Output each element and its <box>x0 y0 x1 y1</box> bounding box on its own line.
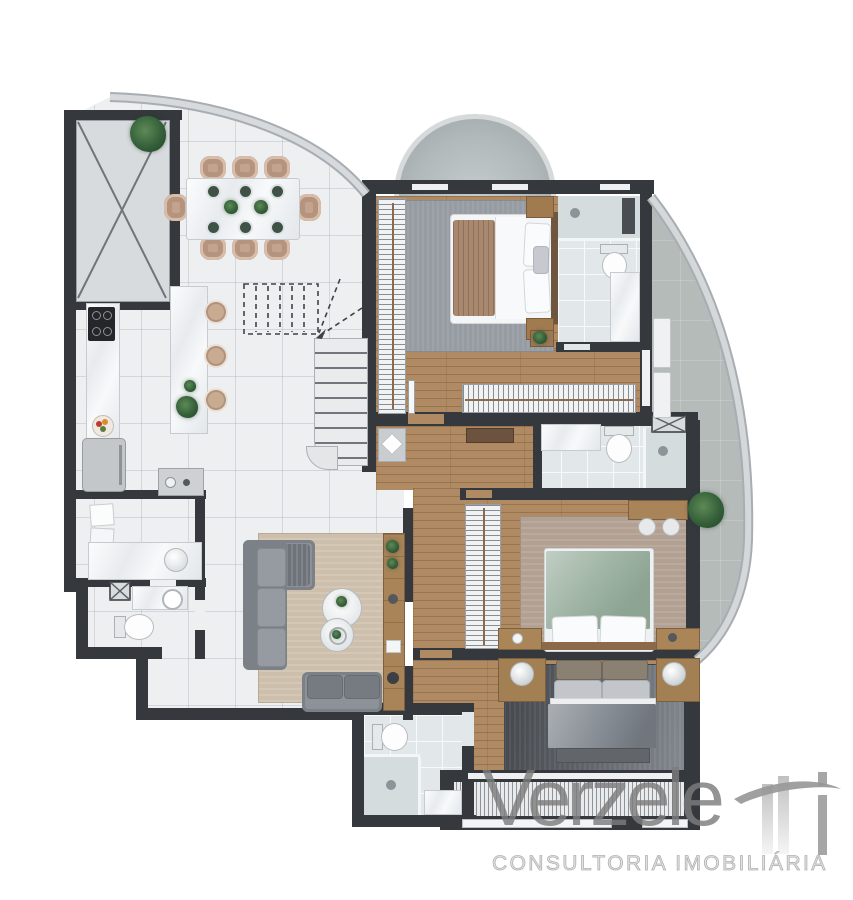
floor-plan: Verzele CONSULTORIA IMOBILIÁRIA <box>0 0 853 900</box>
brand-mark-bar <box>778 776 789 854</box>
brand-mark-i-dot <box>818 772 827 786</box>
brand-tagline: CONSULTORIA IMOBILIÁRIA <box>492 852 852 876</box>
brand-mark-swoosh <box>0 0 853 900</box>
brand-mark-bar <box>762 784 773 854</box>
brand-mark-i-stem <box>818 795 827 855</box>
